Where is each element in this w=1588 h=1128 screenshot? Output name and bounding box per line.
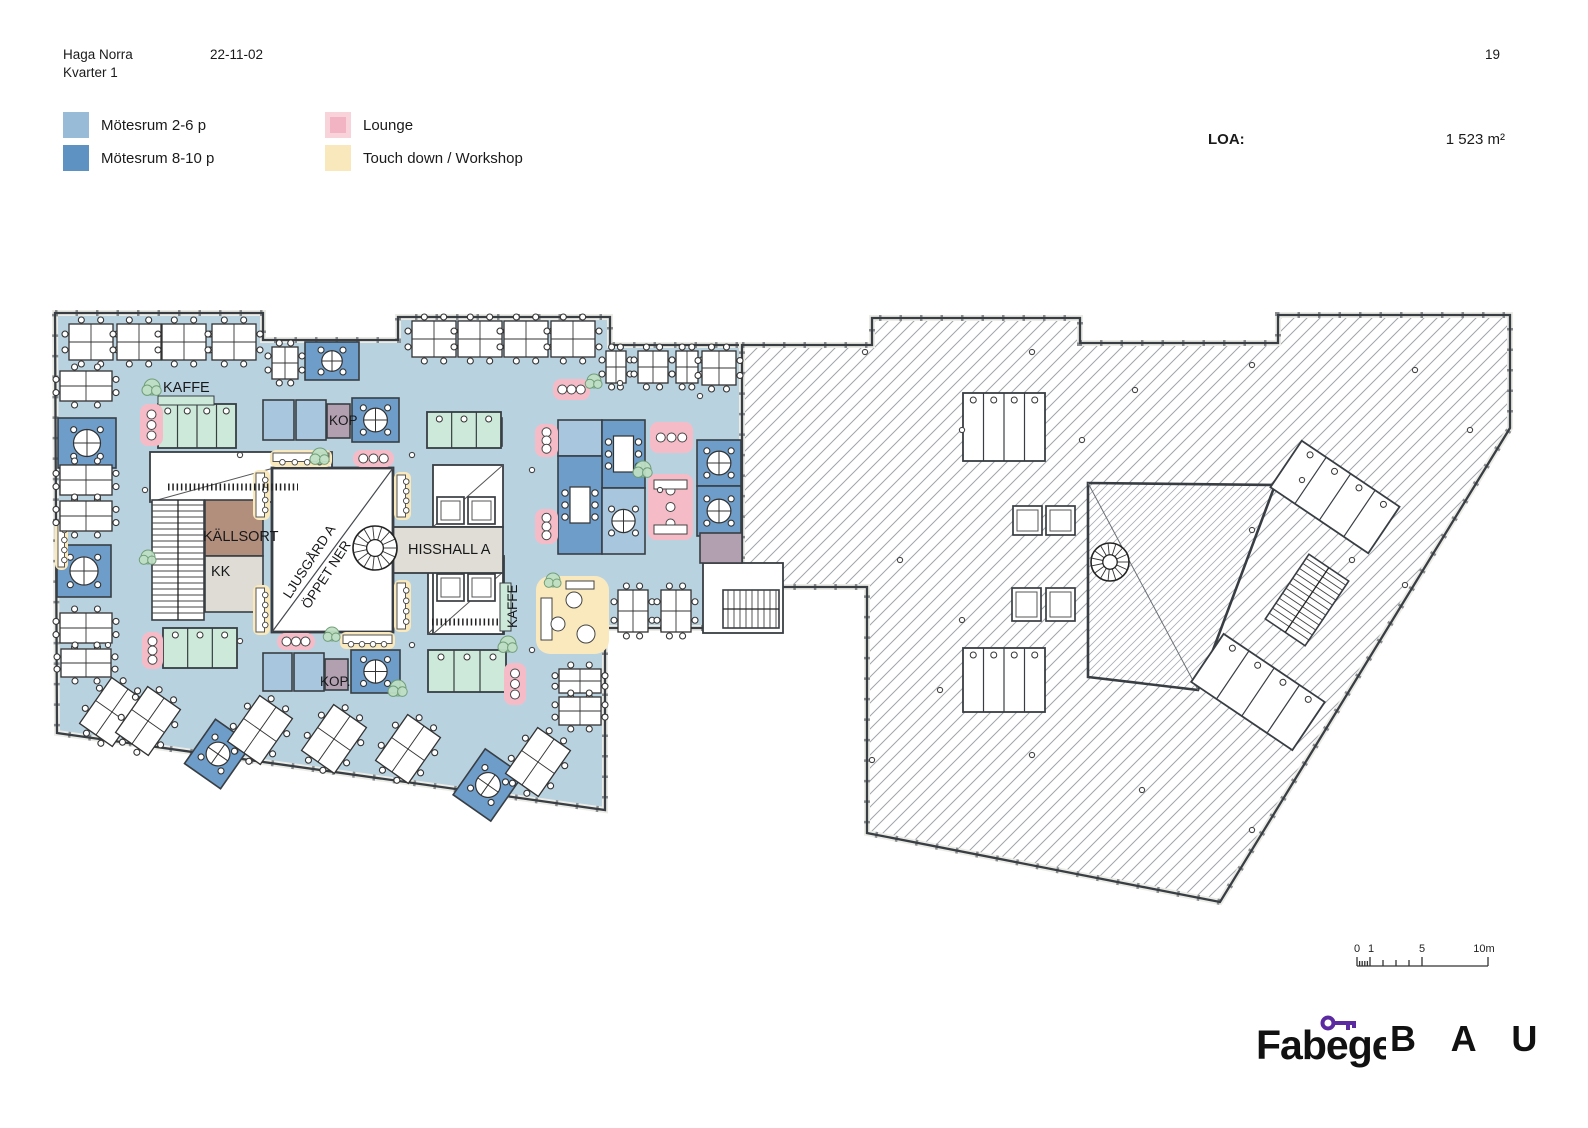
label-kallsort: KÄLLSORT	[203, 528, 279, 545]
label-kaffe-top: KAFFE	[163, 380, 210, 396]
label-kop-top: KOP	[329, 413, 358, 428]
scale-bar: 0 1 5 10m	[1354, 943, 1495, 966]
scale-1: 1	[1368, 943, 1374, 955]
scale-0: 0	[1354, 943, 1360, 955]
fabege-wordmark: Fabege	[1256, 1022, 1386, 1068]
label-kaffe-side: KAFFE	[505, 584, 520, 628]
label-kop-bottom: KOP.	[320, 674, 351, 689]
scale-5: 5	[1419, 943, 1425, 955]
fabege-logo: Fabege	[1256, 1012, 1386, 1077]
bau-logo: B A U	[1390, 1018, 1550, 1060]
scale-10m: 10m	[1473, 943, 1494, 955]
label-kk: KK	[211, 564, 231, 580]
floor-plan: KAFFE KOP KÄLLSORT KK LJUSGÅRD A ÖPPET N…	[0, 0, 1588, 1123]
label-hisshall: HISSHALL A	[408, 542, 491, 558]
